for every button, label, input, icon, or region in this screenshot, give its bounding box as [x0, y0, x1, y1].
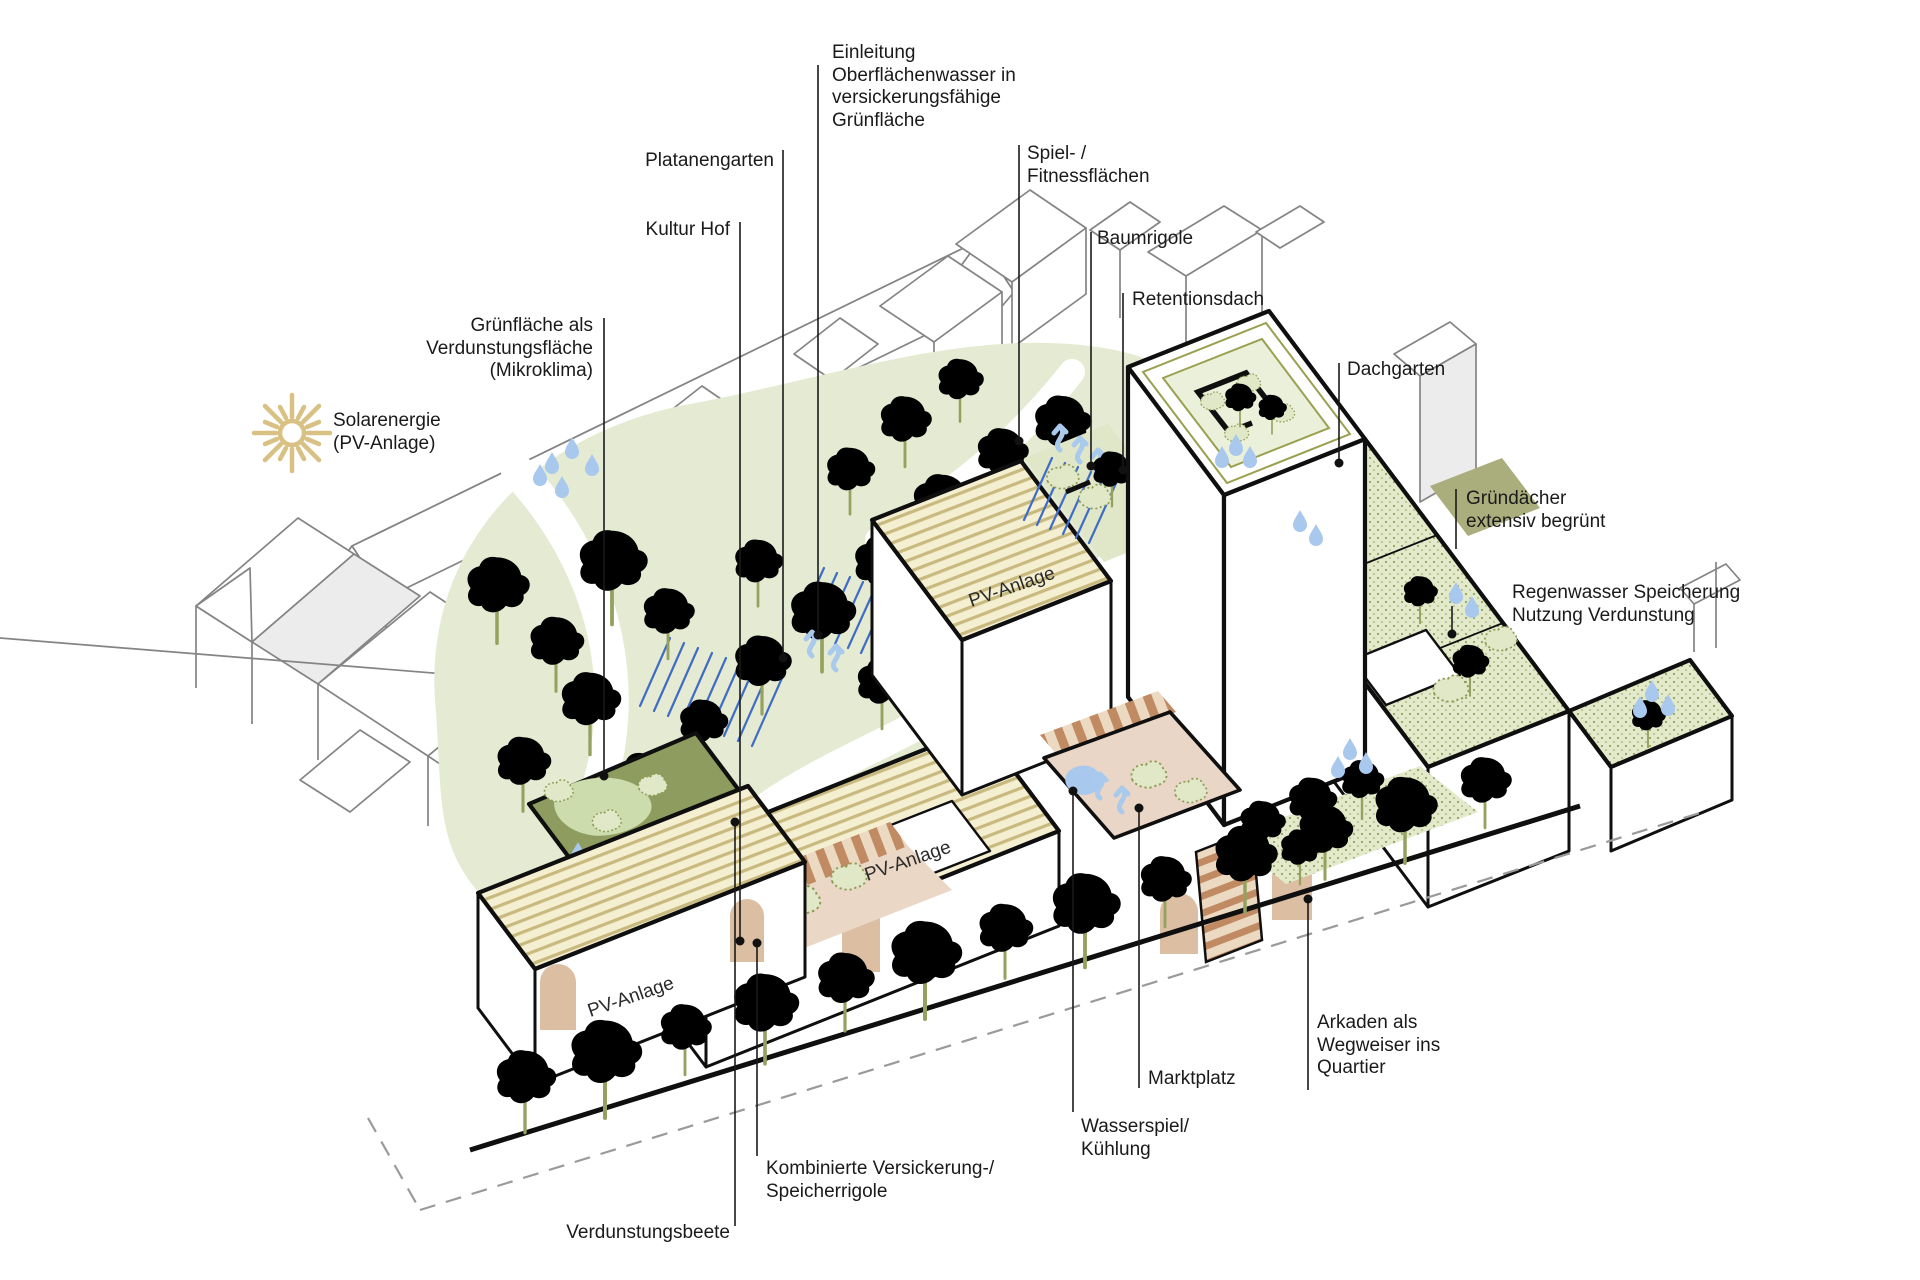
label-regenwasser: Regenwasser Speicherung Nutzung Verdunst… [1512, 582, 1740, 627]
label-arkaden: Arkaden als Wegweiser ins Quartier [1317, 1012, 1440, 1080]
label-solarenergie: Solarenergie (PV-Anlage) [333, 410, 441, 455]
label-spiel-fitness: Spiel- / Fitnessflächen [1027, 143, 1150, 188]
label-gruendaecher: Gründächer extensiv begrünt [1466, 488, 1605, 533]
label-baumrigole: Baumrigole [1097, 228, 1193, 251]
label-kultur-hof: Kultur Hof [580, 219, 730, 242]
label-platanengarten: Platanengarten [574, 150, 774, 173]
label-dachgarten: Dachgarten [1347, 359, 1445, 382]
diagram-stage: Einleitung Oberflächenwasser in versicke… [0, 0, 1920, 1280]
label-retentionsdach: Retentionsdach [1132, 289, 1264, 312]
sun-icon [254, 395, 330, 471]
label-einleitung: Einleitung Oberflächenwasser in versicke… [832, 42, 1016, 132]
label-wasserspiel: Wasserspiel/ Kühlung [1081, 1116, 1189, 1161]
axonometric-illustration [0, 0, 1920, 1280]
label-verdunstungsbeete: Verdunstungsbeete [530, 1222, 730, 1245]
label-marktplatz: Marktplatz [1148, 1068, 1236, 1091]
label-kombinierte: Kombinierte Versickerung-/ Speicherrigol… [766, 1158, 994, 1203]
label-gruenflaeche-verdunstung: Grünfläche als Verdunstungsfläche (Mikro… [373, 315, 593, 383]
